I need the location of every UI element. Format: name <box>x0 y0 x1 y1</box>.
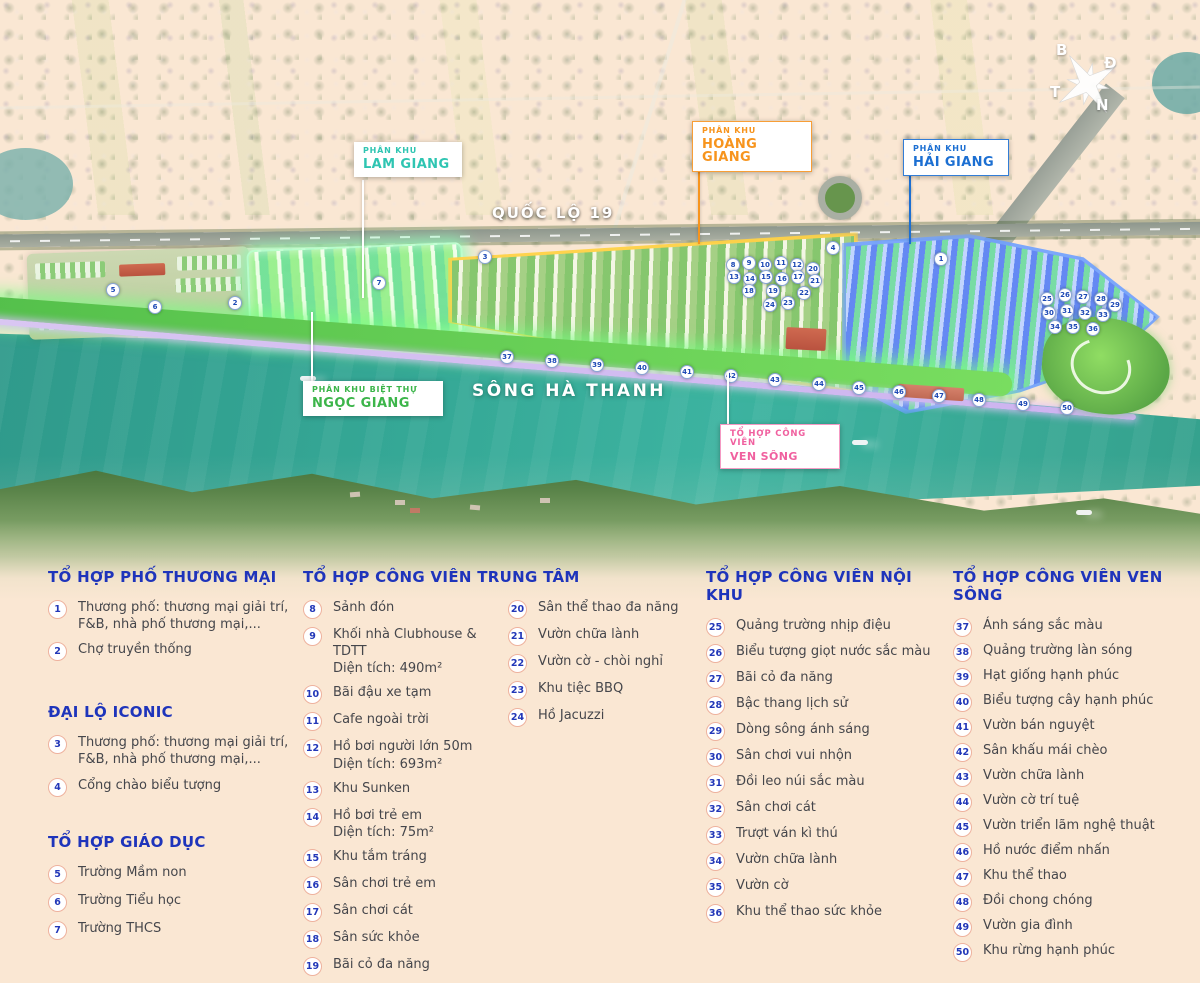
legend-item-label: Khu Sunken <box>333 781 410 796</box>
legend-item-label: Vườn cờ <box>736 878 789 893</box>
legend-column-central-park: TỔ HỢP CÔNG VIÊN TRUNG TÂM 8 Sảnh đón 9 … <box>303 568 705 983</box>
legend-item-label: Chợ truyền thống <box>78 642 192 657</box>
map-marker-number: 14 <box>745 275 755 283</box>
legend-item: 26 Biểu tượng giọt nước sắc màu <box>706 643 948 663</box>
legend-item-label: Vườn bán nguyệt <box>983 718 1095 733</box>
legend-list: 8 Sảnh đón 9 Khối nhà Clubhouse & TDTTDi… <box>303 599 508 983</box>
zone-label-prefix: PHÂN KHU BIỆT THỰ <box>312 386 434 395</box>
map-marker-number: 36 <box>1088 325 1098 333</box>
legend-item-text: Quảng trường làn sóng <box>983 642 1133 659</box>
zone-label-name: NGỌC GIANG <box>312 397 434 411</box>
legend-section-title: TỔ HỢP GIÁO DỤC <box>48 833 303 851</box>
leader-line-hai-giang <box>909 168 911 244</box>
legend-item-label: Sân chơi vui nhộn <box>736 748 852 763</box>
legend-item-label: Trượt ván kì thú <box>736 826 838 841</box>
map-marker-number: 47 <box>934 392 944 400</box>
map-marker-number: 32 <box>1080 309 1090 317</box>
legend-item: 7 Trường THCS <box>48 920 303 940</box>
legend-list: 1 Thương phố: thương mại giải trí, F&B, … <box>48 599 303 661</box>
map-marker-number: 33 <box>1098 311 1108 319</box>
map-marker-number: 1 <box>939 255 944 263</box>
legend-item-label: Trường Tiểu học <box>78 893 181 908</box>
legend-item-text: Cafe ngoài trời <box>333 711 429 728</box>
legend-item-label: Hồ Jacuzzi <box>538 708 604 723</box>
map-marker-number: 8 <box>731 261 736 269</box>
legend-item-text: Dòng sông ánh sáng <box>736 721 870 738</box>
legend-item-text: Sân thể thao đa năng <box>538 599 679 616</box>
zone-label-name: VEN SÔNG <box>730 451 830 463</box>
map-marker-number: 48 <box>974 396 984 404</box>
legend-section-title: TỔ HỢP CÔNG VIÊN TRUNG TÂM <box>303 568 705 586</box>
road-label: QUỐC LỘ 19 <box>492 204 614 222</box>
legend-item-label: Dòng sông ánh sáng <box>736 722 870 737</box>
legend-item-label: Sân khấu mái chèo <box>983 743 1107 758</box>
legend-item-text: Sân sức khỏe <box>333 929 420 946</box>
map-marker-number: 28 <box>1096 295 1106 303</box>
legend-item: 22 Vườn cờ - chòi nghỉ <box>508 653 698 673</box>
legend-item-number: 36 <box>706 904 725 923</box>
map-marker: 48 <box>972 393 986 407</box>
legend-item-number: 24 <box>508 708 527 727</box>
legend-item: 10 Bãi đậu xe tạm <box>303 684 508 704</box>
legend-item-number: 14 <box>303 808 322 827</box>
map-marker-number: 15 <box>761 273 771 281</box>
map-marker: 2 <box>228 296 242 310</box>
legend-item-number: 23 <box>508 681 527 700</box>
map-marker: 7 <box>372 276 386 290</box>
map-marker-number: 21 <box>810 277 820 285</box>
legend-item-number: 28 <box>706 696 725 715</box>
legend-item-label: Sân thể thao đa năng <box>538 600 679 615</box>
map-marker-number: 25 <box>1042 295 1052 303</box>
legend-item: 48 Đồi chong chóng <box>953 892 1200 912</box>
map-marker: 33 <box>1096 308 1110 322</box>
legend-item: 23 Khu tiệc BBQ <box>508 680 698 700</box>
map-marker: 34 <box>1048 320 1062 334</box>
zone-label-name: HẢI GIANG <box>913 156 999 170</box>
map-marker-number: 22 <box>799 289 809 297</box>
map-marker-number: 19 <box>768 287 778 295</box>
legend-item-number: 4 <box>48 778 67 797</box>
map-marker: 35 <box>1066 320 1080 334</box>
legend-item: 44 Vườn cờ trí tuệ <box>953 792 1200 812</box>
legend-item: 38 Quảng trường làn sóng <box>953 642 1200 662</box>
map-marker: 29 <box>1108 298 1122 312</box>
legend-item: 37 Ánh sáng sắc màu <box>953 617 1200 637</box>
legend-item-number: 38 <box>953 643 972 662</box>
map-marker-number: 40 <box>637 364 647 372</box>
legend-item-number: 40 <box>953 693 972 712</box>
legend-item-number: 9 <box>303 627 322 646</box>
legend-item-text: Sảnh đón <box>333 599 394 616</box>
legend-item-number: 48 <box>953 893 972 912</box>
legend-item-label: Vườn cờ trí tuệ <box>983 793 1079 808</box>
legend-item: 17 Sân chơi cát <box>303 902 508 922</box>
legend-item-number: 5 <box>48 865 67 884</box>
map-marker: 31 <box>1060 304 1074 318</box>
legend-item-number: 21 <box>508 627 527 646</box>
legend-item-number: 17 <box>303 903 322 922</box>
legend-item: 28 Bậc thang lịch sử <box>706 695 948 715</box>
legend-item: 1 Thương phố: thương mại giải trí, F&B, … <box>48 599 303 633</box>
legend-item-text: Khu tiệc BBQ <box>538 680 623 697</box>
legend-item-text: Trường Mầm non <box>78 864 187 881</box>
map-marker: 27 <box>1076 290 1090 304</box>
map-marker-number: 9 <box>747 259 752 267</box>
map-marker: 32 <box>1078 306 1092 320</box>
legend-item-label: Quảng trường nhịp điệu <box>736 618 891 633</box>
legend-item: 25 Quảng trường nhịp điệu <box>706 617 948 637</box>
legend-item: 35 Vườn cờ <box>706 877 948 897</box>
legend-item-label: Quảng trường làn sóng <box>983 643 1133 658</box>
map-marker-number: 16 <box>777 275 787 283</box>
legend-item-label: Khu tiệc BBQ <box>538 681 623 696</box>
legend-item-text: Hạt giống hạnh phúc <box>983 667 1119 684</box>
map-marker: 9 <box>742 256 756 270</box>
legend-item-text: Đồi leo núi sắc màu <box>736 773 865 790</box>
legend-item: 34 Vườn chữa lành <box>706 851 948 871</box>
legend-item-number: 8 <box>303 600 322 619</box>
legend-column-riverside-park: TỔ HỢP CÔNG VIÊN VEN SÔNG 37 Ánh sáng sắ… <box>953 568 1200 967</box>
legend-item-text: Cổng chào biểu tượng <box>78 777 221 794</box>
legend-section-title: TỔ HỢP PHỐ THƯƠNG MẠI <box>48 568 303 586</box>
legend-column-inner-park: TỔ HỢP CÔNG VIÊN NỘI KHU 25 Quảng trường… <box>706 568 948 929</box>
legend-item: 4 Cổng chào biểu tượng <box>48 777 303 797</box>
legend-item-label: Bậc thang lịch sử <box>736 696 848 711</box>
map-marker-number: 45 <box>854 384 864 392</box>
legend-item: 36 Khu thể thao sức khỏe <box>706 903 948 923</box>
map-marker-number: 2 <box>233 299 238 307</box>
legend-item-label: Thương phố: thương mại giải trí, F&B, nh… <box>78 735 288 767</box>
map-marker: 39 <box>590 358 604 372</box>
legend-item-number: 22 <box>508 654 527 673</box>
legend-item-number: 49 <box>953 918 972 937</box>
legend-item-number: 29 <box>706 722 725 741</box>
legend-item-text: Vườn chữa lành <box>736 851 837 868</box>
map-marker: 5 <box>106 283 120 297</box>
legend-item-text: Trượt ván kì thú <box>736 825 838 842</box>
legend-item-area: Diện tích: 490m² <box>333 660 508 677</box>
legend-item-number: 45 <box>953 818 972 837</box>
zone-label-lam-giang: PHÂN KHU LAM GIANG <box>354 142 462 177</box>
map-marker: 25 <box>1040 292 1054 306</box>
map-marker: 22 <box>797 286 811 300</box>
map-marker: 50 <box>1060 401 1074 415</box>
legend-item-label: Hồ nước điểm nhấn <box>983 843 1110 858</box>
legend-section-title: TỔ HỢP CÔNG VIÊN NỘI KHU <box>706 568 948 604</box>
legend-item-number: 43 <box>953 768 972 787</box>
legend-item-number: 37 <box>953 618 972 637</box>
map-marker-number: 18 <box>744 287 754 295</box>
legend-item-number: 35 <box>706 878 725 897</box>
legend-item: 43 Vườn chữa lành <box>953 767 1200 787</box>
legend-item-label: Khu thể thao <box>983 868 1067 883</box>
legend-item-label: Khu thể thao sức khỏe <box>736 904 882 919</box>
legend-item: 27 Bãi cỏ đa năng <box>706 669 948 689</box>
legend-item-text: Bậc thang lịch sử <box>736 695 848 712</box>
map-marker-number: 3 <box>483 253 488 261</box>
map-marker-number: 43 <box>770 376 780 384</box>
legend-item-text: Vườn bán nguyệt <box>983 717 1095 734</box>
map-marker-number: 5 <box>111 286 116 294</box>
legend-item-text: Khu thể thao sức khỏe <box>736 903 882 920</box>
legend-item-number: 25 <box>706 618 725 637</box>
legend-item-number: 11 <box>303 712 322 731</box>
legend-item: 45 Vườn triển lãm nghệ thuật <box>953 817 1200 837</box>
map-markers: 1 2 3 4 5 6 7 8 9 10 11 12 13 14 15 <box>0 0 1200 600</box>
map-marker-number: 12 <box>792 261 802 269</box>
legend-item-label: Hạt giống hạnh phúc <box>983 668 1119 683</box>
map-marker: 26 <box>1058 288 1072 302</box>
map-marker: 21 <box>808 274 822 288</box>
legend-item-text: Thương phố: thương mại giải trí, F&B, nh… <box>78 599 303 633</box>
legend-item: 40 Biểu tượng cây hạnh phúc <box>953 692 1200 712</box>
legend-item-number: 34 <box>706 852 725 871</box>
legend-item: 2 Chợ truyền thống <box>48 641 303 661</box>
legend-item-text: Sân chơi vui nhộn <box>736 747 852 764</box>
legend-item-text: Vườn cờ trí tuệ <box>983 792 1079 809</box>
map-marker-number: 30 <box>1044 309 1054 317</box>
zone-label-name: LAM GIANG <box>363 158 453 172</box>
compass-east-label: Đ <box>1104 54 1117 72</box>
legend-item-text: Bãi cỏ đa năng <box>333 956 430 973</box>
legend-item-text: Biểu tượng cây hạnh phúc <box>983 692 1153 709</box>
map-marker-number: 7 <box>377 279 382 287</box>
zone-label-prefix: PHÂN KHU <box>913 145 999 154</box>
legend-item-label: Sân chơi cát <box>736 800 816 815</box>
legend-item-number: 20 <box>508 600 527 619</box>
legend-item-label: Cổng chào biểu tượng <box>78 778 221 793</box>
legend-item-label: Thương phố: thương mại giải trí, F&B, nh… <box>78 600 288 632</box>
legend-item-label: Hồ bơi trẻ em <box>333 808 422 823</box>
map-marker-number: 39 <box>592 361 602 369</box>
zone-label-ngoc-giang: PHÂN KHU BIỆT THỰ NGỌC GIANG <box>303 381 443 416</box>
legend-list: 37 Ánh sáng sắc màu 38 Quảng trường làn … <box>953 617 1200 962</box>
map-marker-number: 37 <box>502 353 512 361</box>
legend-section-title: ĐẠI LỘ ICONIC <box>48 703 303 721</box>
legend-item: 42 Sân khấu mái chèo <box>953 742 1200 762</box>
legend-column-1: TỔ HỢP PHỐ THƯƠNG MẠI 1 Thương phố: thươ… <box>48 568 303 948</box>
map-marker-number: 6 <box>153 303 158 311</box>
legend-item-number: 41 <box>953 718 972 737</box>
legend-item-text: Khu rừng hạnh phúc <box>983 942 1115 959</box>
legend-item-text: Chợ truyền thống <box>78 641 192 658</box>
legend-item-label: Khu tắm tráng <box>333 849 427 864</box>
legend-item-text: Quảng trường nhịp điệu <box>736 617 891 634</box>
legend-item-label: Vườn chữa lành <box>736 852 837 867</box>
leader-line-lam-giang <box>362 180 364 298</box>
river-label: SÔNG HÀ THANH <box>472 381 666 401</box>
map-marker: 17 <box>791 270 805 284</box>
legend-item: 15 Khu tắm tráng <box>303 848 508 868</box>
legend-item: 11 Cafe ngoài trời <box>303 711 508 731</box>
map-marker: 11 <box>774 256 788 270</box>
legend-item: 41 Vườn bán nguyệt <box>953 717 1200 737</box>
legend-item-text: Khu tắm tráng <box>333 848 427 865</box>
legend-item-label: Trường Mầm non <box>78 865 187 880</box>
legend-item: 29 Dòng sông ánh sáng <box>706 721 948 741</box>
legend-item-label: Sảnh đón <box>333 600 394 615</box>
map-marker-number: 49 <box>1018 400 1028 408</box>
zone-label-prefix: PHÂN KHU <box>363 147 453 156</box>
legend-item-number: 39 <box>953 668 972 687</box>
map-marker: 19 <box>766 284 780 298</box>
legend-item-label: Vườn cờ - chòi nghỉ <box>538 654 663 669</box>
map-marker: 3 <box>478 250 492 264</box>
legend-item-number: 33 <box>706 826 725 845</box>
legend-item-text: Trường Tiểu học <box>78 892 181 909</box>
legend-item: 6 Trường Tiểu học <box>48 892 303 912</box>
legend-item-label: Đồi leo núi sắc màu <box>736 774 865 789</box>
legend-item-number: 42 <box>953 743 972 762</box>
map-marker: 45 <box>852 381 866 395</box>
legend-item: 3 Thương phố: thương mại giải trí, F&B, … <box>48 734 303 768</box>
legend: TỔ HỢP PHỐ THƯƠNG MẠI 1 Thương phố: thươ… <box>0 558 1200 915</box>
legend-item-label: Đồi chong chóng <box>983 893 1093 908</box>
map-marker-number: 50 <box>1062 404 1072 412</box>
legend-item-area: Diện tích: 75m² <box>333 824 434 841</box>
legend-item: 47 Khu thể thao <box>953 867 1200 887</box>
map-marker: 1 <box>934 252 948 266</box>
legend-item-number: 12 <box>303 739 322 758</box>
legend-item-number: 15 <box>303 849 322 868</box>
legend-item-text: Thương phố: thương mại giải trí, F&B, nh… <box>78 734 303 768</box>
legend-item-text: Ánh sáng sắc màu <box>983 617 1103 634</box>
legend-item-text: Vườn cờ - chòi nghỉ <box>538 653 663 670</box>
map-marker: 15 <box>759 270 773 284</box>
legend-item: 5 Trường Mầm non <box>48 864 303 884</box>
legend-item: 32 Sân chơi cát <box>706 799 948 819</box>
legend-item-text: Hồ bơi trẻ emDiện tích: 75m² <box>333 807 434 841</box>
legend-item: 39 Hạt giống hạnh phúc <box>953 667 1200 687</box>
legend-item: 24 Hồ Jacuzzi <box>508 707 698 727</box>
map-marker-number: 34 <box>1050 323 1060 331</box>
map-marker: 4 <box>826 241 840 255</box>
legend-section-education: TỔ HỢP GIÁO DỤC 5 Trường Mầm non 6 Trườn… <box>48 833 303 940</box>
legend-item-label: Khối nhà Clubhouse & TDTT <box>333 627 477 659</box>
compass-north-label: B <box>1056 41 1067 59</box>
legend-item-text: Vườn chữa lành <box>983 767 1084 784</box>
legend-item-number: 44 <box>953 793 972 812</box>
zone-label-ven-song: TỔ HỢP CÔNG VIÊN VEN SÔNG <box>720 424 840 469</box>
legend-section-title: TỔ HỢP CÔNG VIÊN VEN SÔNG <box>953 568 1200 604</box>
legend-item-text: Bãi cỏ đa năng <box>736 669 833 686</box>
legend-item-number: 7 <box>48 921 67 940</box>
compass-rose-icon: B Đ N T <box>1038 30 1138 130</box>
legend-section-iconic: ĐẠI LỘ ICONIC 3 Thương phố: thương mại g… <box>48 703 303 796</box>
legend-item-number: 30 <box>706 748 725 767</box>
legend-item-label: Vườn chữa lành <box>538 627 639 642</box>
map-marker: 46 <box>892 385 906 399</box>
legend-item: 14 Hồ bơi trẻ emDiện tích: 75m² <box>303 807 508 841</box>
legend-item-label: Cafe ngoài trời <box>333 712 429 727</box>
map-marker-number: 41 <box>682 368 692 376</box>
legend-item: 33 Trượt ván kì thú <box>706 825 948 845</box>
map-marker-number: 27 <box>1078 293 1088 301</box>
legend-item: 49 Vườn gia đình <box>953 917 1200 937</box>
legend-list: 25 Quảng trường nhịp điệu 26 Biểu tượng … <box>706 617 948 923</box>
map-marker: 43 <box>768 373 782 387</box>
legend-item: 12 Hồ bơi người lớn 50mDiện tích: 693m² <box>303 738 508 772</box>
legend-item-text: Đồi chong chóng <box>983 892 1093 909</box>
leader-line-ven-song <box>727 372 729 424</box>
legend-item-label: Bãi cỏ đa năng <box>333 957 430 972</box>
legend-item: 16 Sân chơi trẻ em <box>303 875 508 895</box>
map-marker: 24 <box>763 298 777 312</box>
legend-two-sublists: 8 Sảnh đón 9 Khối nhà Clubhouse & TDTTDi… <box>303 599 705 983</box>
map-marker: 41 <box>680 365 694 379</box>
legend-item-text: Sân chơi trẻ em <box>333 875 436 892</box>
legend-item: 46 Hồ nước điểm nhấn <box>953 842 1200 862</box>
map-marker-number: 29 <box>1110 301 1120 309</box>
legend-item-text: Sân khấu mái chèo <box>983 742 1107 759</box>
zone-label-hai-giang: PHÂN KHU HẢI GIANG <box>903 139 1009 176</box>
map-marker-number: 4 <box>831 244 836 252</box>
legend-item-number: 1 <box>48 600 67 619</box>
compass-star <box>1038 30 1138 130</box>
legend-item-text: Bãi đậu xe tạm <box>333 684 431 701</box>
legend-item-number: 16 <box>303 876 322 895</box>
legend-item-label: Sân chơi trẻ em <box>333 876 436 891</box>
map-marker: 6 <box>148 300 162 314</box>
map-marker-number: 10 <box>760 261 770 269</box>
legend-item: 50 Khu rừng hạnh phúc <box>953 942 1200 962</box>
map-marker-number: 24 <box>765 301 775 309</box>
map-marker-number: 17 <box>793 273 803 281</box>
zone-label-prefix: TỔ HỢP CÔNG VIÊN <box>730 430 830 449</box>
legend-item-text: Vườn triển lãm nghệ thuật <box>983 817 1155 834</box>
map-marker: 47 <box>932 389 946 403</box>
map-marker: 36 <box>1086 322 1100 336</box>
map-marker-number: 46 <box>894 388 904 396</box>
legend-item-number: 3 <box>48 735 67 754</box>
legend-item: 8 Sảnh đón <box>303 599 508 619</box>
map-marker: 40 <box>635 361 649 375</box>
legend-list: 20 Sân thể thao đa năng 21 Vườn chữa làn… <box>508 599 698 983</box>
legend-item-label: Vườn chữa lành <box>983 768 1084 783</box>
legend-item-number: 6 <box>48 893 67 912</box>
map-marker-number: 35 <box>1068 323 1078 331</box>
legend-item-number: 19 <box>303 957 322 976</box>
legend-item-number: 2 <box>48 642 67 661</box>
legend-item: 19 Bãi cỏ đa năng <box>303 956 508 976</box>
map-marker: 18 <box>742 284 756 298</box>
zone-label-prefix: PHÂN KHU <box>702 127 802 136</box>
map-marker-number: 26 <box>1060 291 1070 299</box>
legend-item-label: Vườn gia đình <box>983 918 1073 933</box>
map-marker-number: 23 <box>783 299 793 307</box>
legend-item-label: Bãi cỏ đa năng <box>736 670 833 685</box>
zone-label-name: HOÀNG GIANG <box>702 138 802 165</box>
legend-item-number: 26 <box>706 644 725 663</box>
masterplan-map: 1 2 3 4 5 6 7 8 9 10 11 12 13 14 15 <box>0 0 1200 600</box>
map-marker-number: 13 <box>729 273 739 281</box>
compass-west-label: T <box>1050 83 1060 101</box>
legend-item-number: 32 <box>706 800 725 819</box>
legend-item-text: Biểu tượng giọt nước sắc màu <box>736 643 930 660</box>
map-marker-number: 20 <box>808 265 818 273</box>
legend-item-text: Vườn cờ <box>736 877 789 894</box>
legend-list: 5 Trường Mầm non 6 Trường Tiểu học 7 Trư… <box>48 864 303 940</box>
legend-item-label: Biểu tượng cây hạnh phúc <box>983 693 1153 708</box>
legend-item-text: Sân chơi cát <box>333 902 413 919</box>
map-marker: 49 <box>1016 397 1030 411</box>
legend-item-number: 50 <box>953 943 972 962</box>
legend-item-label: Bãi đậu xe tạm <box>333 685 431 700</box>
map-marker: 16 <box>775 272 789 286</box>
legend-item-text: Vườn chữa lành <box>538 626 639 643</box>
legend-item-label: Trường THCS <box>78 921 161 936</box>
